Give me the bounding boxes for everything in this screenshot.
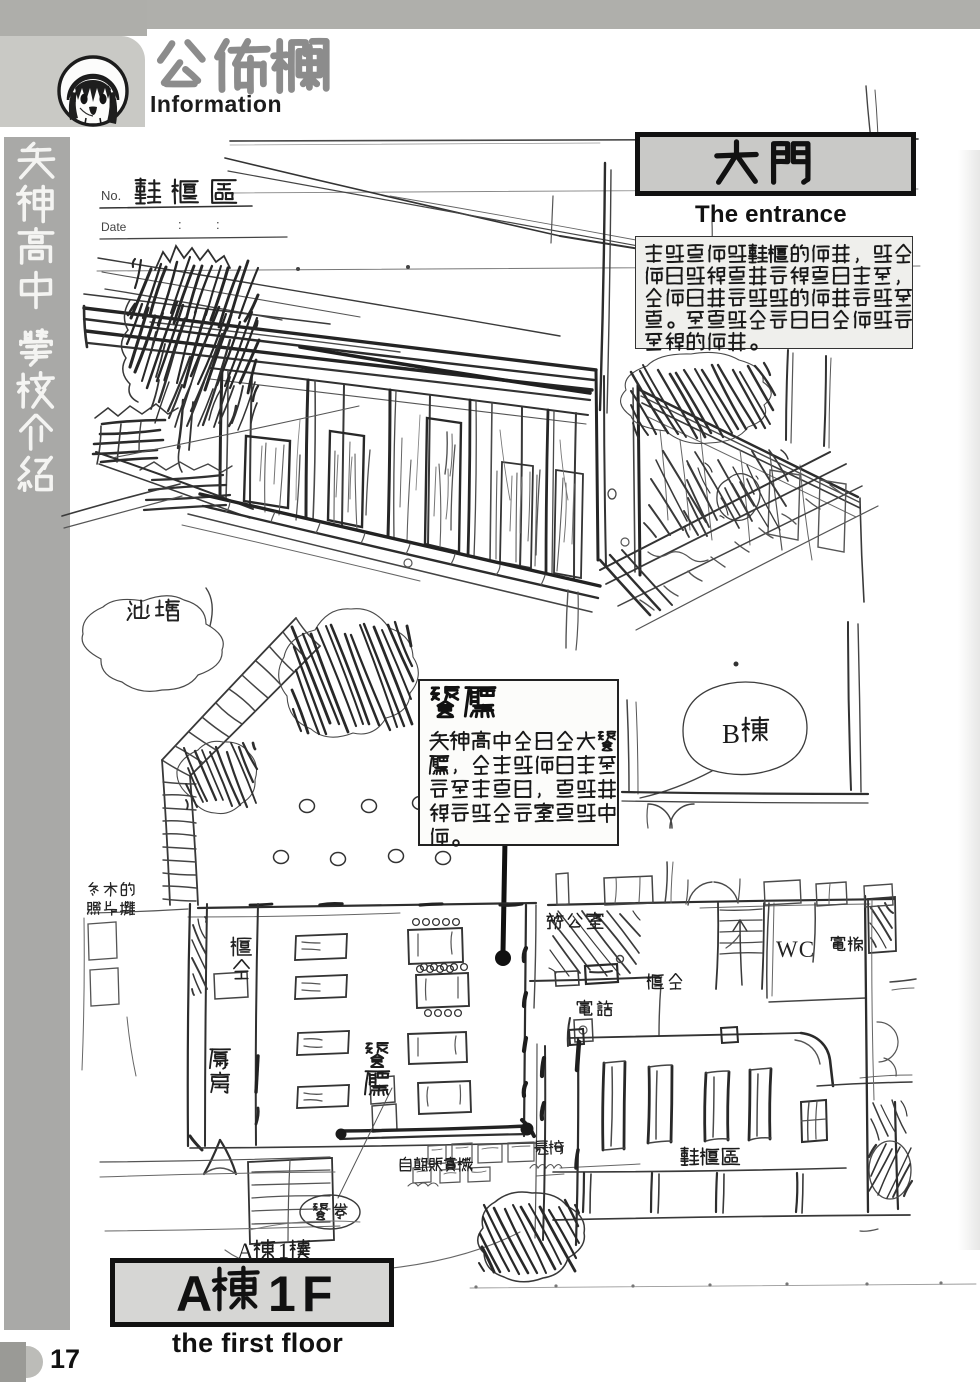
svg-text:F: F [302, 1266, 333, 1322]
svg-text:A: A [176, 1266, 212, 1322]
svg-text:No.: No. [101, 188, 121, 203]
svg-text:B: B [722, 719, 740, 749]
svg-text:Date: Date [101, 220, 127, 234]
svg-text:WC: WC [776, 937, 815, 962]
svg-text:17: 17 [50, 1344, 80, 1374]
svg-text:The entrance: The entrance [695, 201, 847, 228]
svg-text:A: A [237, 1239, 254, 1264]
svg-text::: : [216, 217, 220, 232]
svg-text:1: 1 [268, 1266, 296, 1322]
svg-text:1: 1 [278, 1238, 289, 1263]
svg-text::: : [178, 217, 182, 232]
svg-text:the first floor: the first floor [172, 1328, 343, 1358]
